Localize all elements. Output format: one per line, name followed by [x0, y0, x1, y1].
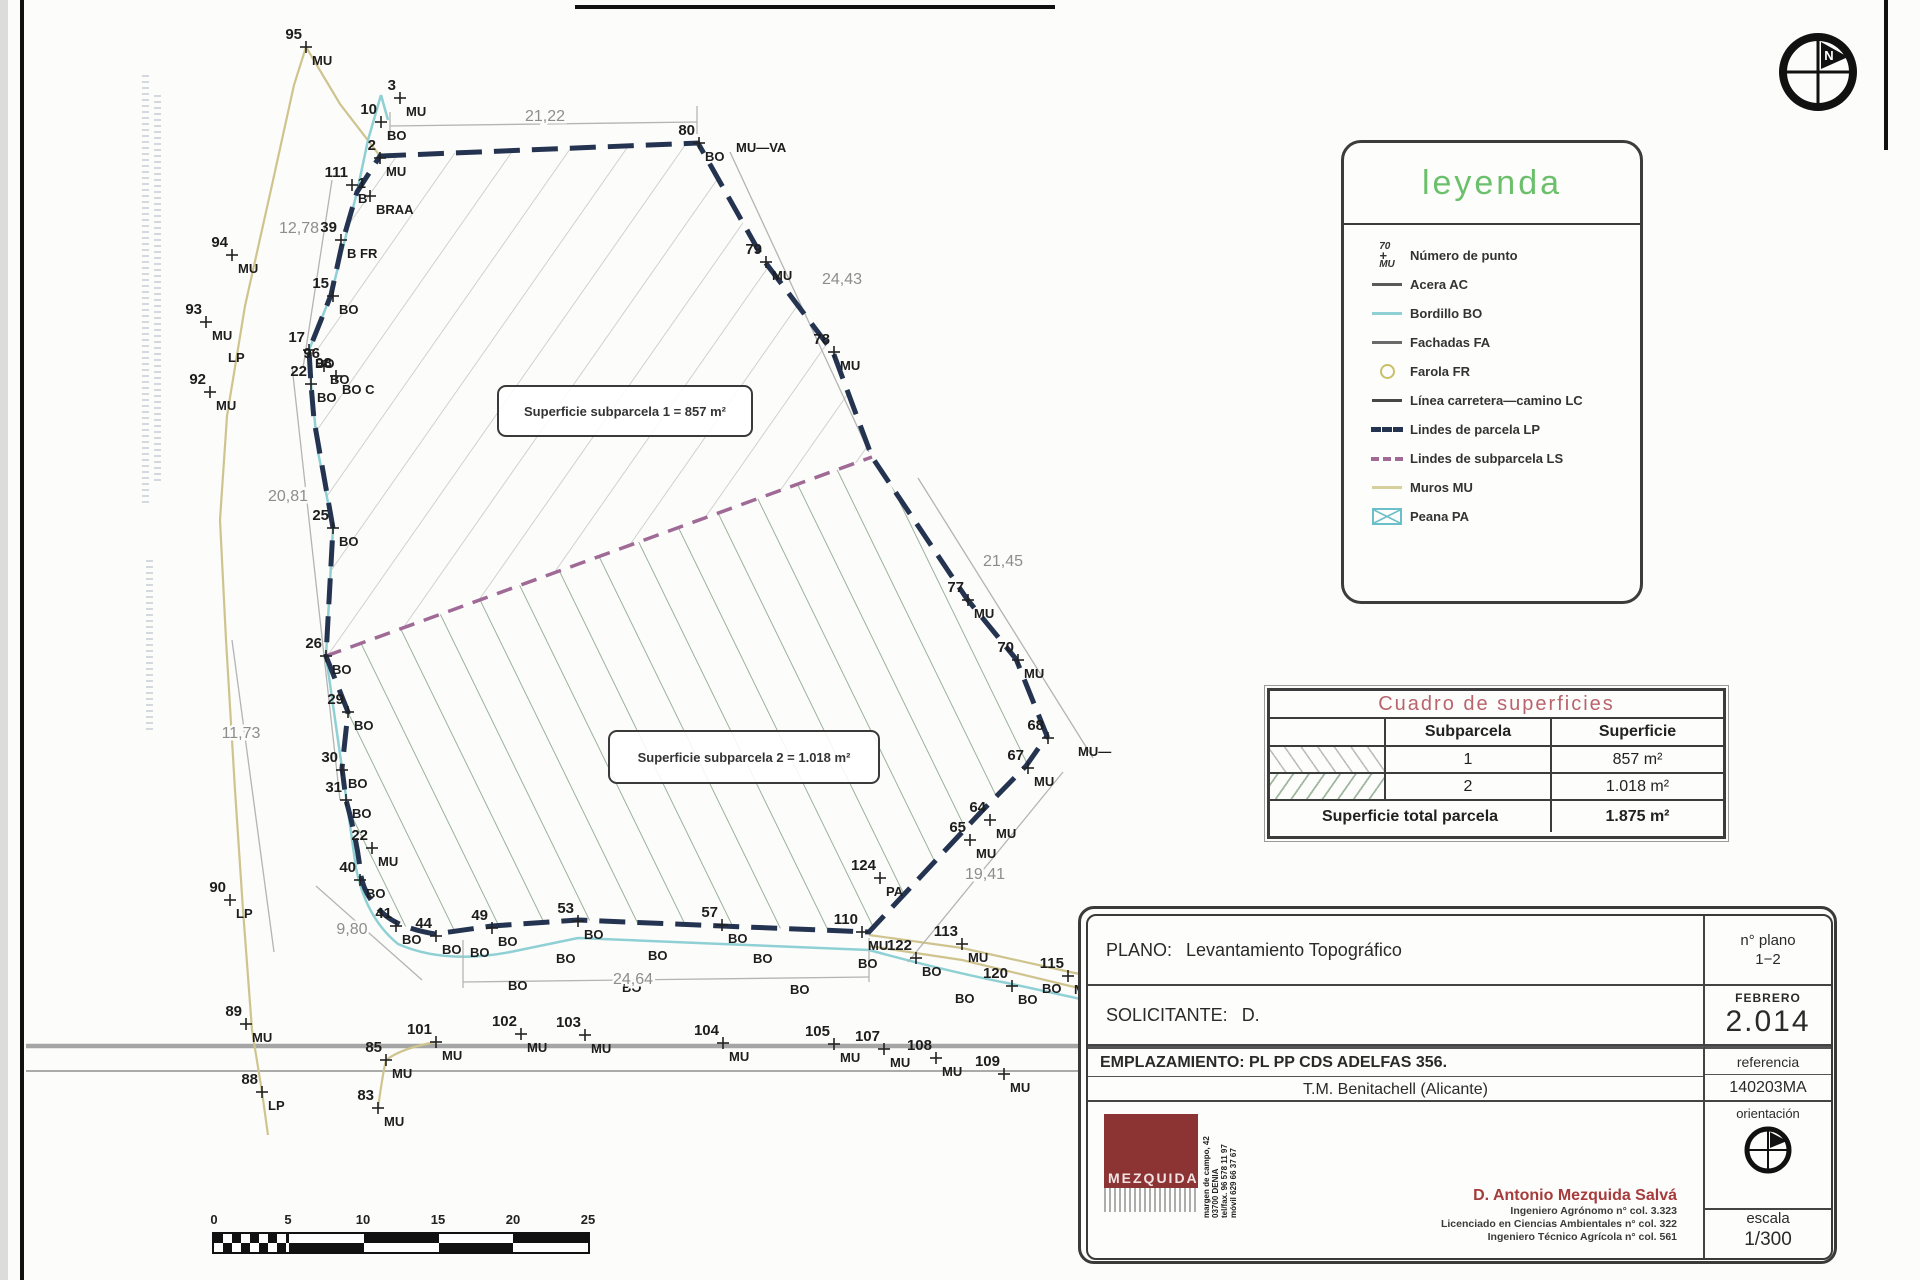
svg-text:98: 98	[315, 355, 332, 372]
legend-item-lindes-parcela: Lindes de parcela LP	[1364, 415, 1630, 444]
svg-text:89: 89	[225, 1003, 242, 1020]
mezquida-logo-caption	[1104, 1188, 1198, 1212]
surfaces-row2-subparcela: 2	[1386, 774, 1552, 801]
svg-text:1: 1	[358, 175, 366, 192]
svg-text:BO: BO	[332, 662, 352, 677]
legend-label: Muros MU	[1410, 480, 1473, 495]
dimension-label: 24,43	[822, 271, 862, 288]
svg-text:101: 101	[407, 1021, 432, 1038]
svg-text:26: 26	[305, 635, 322, 652]
escala-cell: escala 1/300	[1705, 1210, 1831, 1251]
n-plano-cell: n° plano 1−2	[1705, 916, 1831, 986]
svg-text:10: 10	[360, 101, 377, 118]
svg-text:85: 85	[365, 1039, 382, 1056]
subparcel-2-label: Superficie subparcela 2 = 1.018 m²	[608, 730, 880, 784]
svg-text:70: 70	[997, 639, 1014, 656]
svg-text:MU: MU	[868, 938, 888, 953]
signature-cell: MEZQUIDA margen de campo, 42 03700 DENIA…	[1088, 1102, 1705, 1258]
svg-text:111: 111	[325, 164, 348, 181]
svg-text:MU: MU	[527, 1040, 547, 1055]
mezquida-logo: MEZQUIDA margen de campo, 42 03700 DENIA…	[1088, 1102, 1238, 1258]
scale-label: 0	[210, 1212, 217, 1227]
solicitante-value: D.	[1242, 1005, 1260, 1026]
north-arrow-icon: N	[1772, 26, 1864, 118]
orientacion-north-icon	[1739, 1121, 1797, 1179]
engineer-line: Ingeniero Técnico Agrícola n° col. 561	[1441, 1231, 1677, 1244]
svg-text:103: 103	[556, 1014, 581, 1031]
orientacion-escala-cell: orientación escala 1/300	[1705, 1102, 1831, 1258]
fecha-mes: FEBRERO	[1735, 991, 1801, 1005]
svg-text:102: 102	[492, 1013, 517, 1030]
svg-text:120: 120	[983, 965, 1008, 982]
svg-text:78: 78	[813, 331, 830, 348]
svg-text:122: 122	[887, 937, 912, 954]
engineer-credentials: D. Antonio Mezquida Salvá Ingeniero Agró…	[1441, 1187, 1677, 1244]
plan-annotation: BO	[470, 945, 490, 960]
svg-text:BO: BO	[728, 931, 748, 946]
svg-text:MU: MU	[1034, 774, 1054, 789]
svg-text:15: 15	[312, 275, 329, 292]
lindes-parcela-line-icon	[1364, 427, 1410, 432]
acera-line-icon	[1364, 283, 1410, 286]
survey-point: 101MU	[407, 1021, 462, 1063]
svg-text:108: 108	[907, 1037, 932, 1054]
svg-text:LP: LP	[268, 1098, 285, 1113]
legend-title: leyenda	[1344, 143, 1640, 225]
svg-text:22: 22	[351, 827, 368, 844]
surfaces-row1-swatch	[1270, 747, 1386, 774]
svg-text:MU: MU	[840, 1050, 860, 1065]
dimension-label: 21,45	[983, 553, 1023, 570]
plan-annotation: BO	[955, 991, 975, 1006]
mezquida-logo-address: margen de campo, 42 03700 DENIA tel/fax.…	[1202, 1114, 1238, 1218]
svg-text:95: 95	[285, 26, 302, 43]
plan-annotation: BO	[556, 951, 576, 966]
plano-label: PLANO:	[1106, 940, 1172, 961]
svg-text:44: 44	[415, 915, 432, 932]
svg-text:MU: MU	[840, 358, 860, 373]
svg-text:40: 40	[339, 859, 356, 876]
bordillo-line-icon	[1364, 312, 1410, 315]
scale-label: 10	[356, 1212, 370, 1227]
svg-text:67: 67	[1007, 747, 1024, 764]
survey-point: 113MU	[934, 923, 988, 965]
survey-point: 94MU	[211, 234, 258, 276]
surfaces-table-title: Cuadro de superficies	[1270, 691, 1723, 719]
legend-item-numero-punto: 70+MU Número de punto	[1364, 241, 1630, 270]
mezquida-logo-text: MEZQUIDA	[1108, 1170, 1199, 1186]
surfaces-total-value: 1.875 m²	[1552, 801, 1723, 832]
svg-text:93: 93	[185, 301, 202, 318]
svg-text:2: 2	[368, 137, 376, 154]
fecha-cell: FEBRERO 2.014	[1705, 986, 1831, 1046]
surfaces-row2-swatch	[1270, 774, 1386, 801]
survey-point: 107MU	[855, 1028, 910, 1070]
svg-text:88: 88	[241, 1071, 258, 1088]
legend-label: Bordillo BO	[1410, 306, 1482, 321]
svg-text:BO: BO	[354, 718, 374, 733]
svg-text:MU: MU	[1010, 1080, 1030, 1095]
referencia-cell: referencia 140203MA	[1705, 1046, 1831, 1102]
plan-annotation: BO	[648, 948, 668, 963]
surfaces-header-subparcela: Subparcela	[1386, 719, 1552, 747]
scale-bar: 0 5 10 15 20 25	[212, 1212, 590, 1254]
subparcel-1-label-text: Superficie subparcela 1 = 857 m²	[524, 404, 726, 419]
svg-text:N: N	[1824, 48, 1833, 63]
surfaces-row2-superficie: 1.018 m²	[1552, 774, 1723, 801]
plan-annotation: MU—	[1078, 744, 1111, 759]
svg-text:BO: BO	[339, 534, 359, 549]
svg-text:MU: MU	[976, 846, 996, 861]
survey-point: 109MU	[975, 1053, 1030, 1095]
surfaces-row1-subparcela: 1	[1386, 747, 1552, 774]
svg-text:29: 29	[327, 691, 344, 708]
legend-label: Número de punto	[1410, 248, 1518, 263]
subparcel-2-label-text: Superficie subparcela 2 = 1.018 m²	[638, 750, 851, 765]
svg-text:41: 41	[375, 905, 392, 922]
svg-text:BO: BO	[402, 932, 422, 947]
plan-annotation: BO	[790, 982, 810, 997]
svg-text:BO: BO	[1018, 992, 1038, 1007]
svg-text:115: 115	[1040, 955, 1064, 972]
escala-label: escala	[1746, 1210, 1789, 1227]
svg-text:MU: MU	[392, 1066, 412, 1081]
fachadas-line-icon	[1364, 341, 1410, 344]
survey-point: 95MU	[285, 26, 332, 68]
legend-item-acera: Acera AC	[1364, 270, 1630, 299]
legend-label: Peana PA	[1410, 509, 1469, 524]
svg-text:MU: MU	[442, 1048, 462, 1063]
dimension-label: 19,41	[965, 866, 1005, 883]
svg-text:MU: MU	[996, 826, 1016, 841]
referencia-value: 140203MA	[1705, 1075, 1831, 1100]
legend-box: leyenda 70+MU Número de punto Acera AC B…	[1341, 140, 1643, 604]
peana-icon	[1364, 508, 1410, 525]
plan-annotation: BO	[753, 951, 773, 966]
svg-text:BO C: BO C	[342, 382, 375, 397]
legend-point-code: MU	[1379, 260, 1395, 269]
legend-label: Acera AC	[1410, 277, 1468, 292]
svg-text:64: 64	[969, 799, 986, 816]
svg-text:110: 110	[834, 911, 858, 928]
svg-text:57: 57	[701, 904, 718, 921]
emplazamiento-line2: T.M. Benitachell (Alicante)	[1088, 1077, 1703, 1103]
scale-bar-labels: 0 5 10 15 20 25	[212, 1212, 590, 1232]
legend-item-linea-carretera: Línea carretera—camino LC	[1364, 386, 1630, 415]
dimension-label: 11,73	[222, 725, 261, 742]
orientacion-cell: orientación	[1705, 1102, 1831, 1210]
svg-text:B: B	[358, 191, 367, 206]
svg-text:94: 94	[211, 234, 228, 251]
svg-text:MU: MU	[238, 261, 258, 276]
solicitante-label: SOLICITANTE:	[1106, 1005, 1228, 1026]
scale-label: 5	[284, 1212, 291, 1227]
survey-point: 93MU	[185, 301, 232, 343]
plano-row: PLANO: Levantamiento Topográfico	[1088, 916, 1705, 986]
svg-text:MU: MU	[212, 328, 232, 343]
legend-item-lindes-subparcela: Lindes de subparcela LS	[1364, 444, 1630, 473]
svg-text:80: 80	[678, 122, 695, 139]
svg-text:MU: MU	[772, 268, 792, 283]
svg-text:MU: MU	[406, 104, 426, 119]
svg-text:MU: MU	[974, 606, 994, 621]
svg-text:65: 65	[949, 819, 966, 836]
surfaces-table: Cuadro de superficies Subparcela Superfi…	[1267, 688, 1726, 839]
legend-item-peana: Peana PA	[1364, 502, 1630, 531]
svg-text:BO: BO	[442, 942, 462, 957]
surfaces-total-label: Superficie total parcela	[1270, 801, 1552, 832]
svg-text:77: 77	[947, 579, 964, 596]
svg-text:BO: BO	[584, 927, 604, 942]
title-block: PLANO: Levantamiento Topográfico n° plan…	[1078, 906, 1837, 1264]
survey-point: 89MU	[225, 1003, 272, 1045]
legend-item-bordillo: Bordillo BO	[1364, 299, 1630, 328]
legend-item-fachadas: Fachadas FA	[1364, 328, 1630, 357]
orientacion-label: orientación	[1736, 1106, 1800, 1121]
svg-text:BO: BO	[339, 302, 359, 317]
emplazamiento-line1: EMPLAZAMIENTO: PL PP CDS ADELFAS 356.	[1088, 1049, 1703, 1077]
svg-text:LP: LP	[236, 906, 253, 921]
dimension-label: 20,81	[268, 488, 308, 505]
svg-text:MU: MU	[1024, 666, 1044, 681]
survey-point: 104MU	[694, 1022, 749, 1064]
scanned-plan-page: 95MU3MU10BO2MU111B1BRAA139B FR15BO17BO22…	[0, 0, 1920, 1280]
surfaces-row1-superficie: 857 m²	[1552, 747, 1723, 774]
survey-point: 3MU	[388, 77, 427, 119]
svg-text:MU: MU	[942, 1064, 962, 1079]
svg-text:105: 105	[805, 1023, 830, 1040]
subparcel-1-label: Superficie subparcela 1 = 857 m²	[497, 385, 753, 437]
emplazamiento-cell: EMPLAZAMIENTO: PL PP CDS ADELFAS 356. T.…	[1088, 1046, 1705, 1102]
engineer-line: Ingeniero Agrónomo n° col. 3.323	[1441, 1205, 1677, 1218]
svg-text:B FR: B FR	[347, 246, 378, 261]
svg-text:MU: MU	[968, 950, 988, 965]
dimension-label: 21,22	[525, 108, 565, 125]
svg-text:31: 31	[325, 779, 342, 796]
survey-point: 108MU	[907, 1037, 962, 1079]
svg-text:BO: BO	[922, 964, 942, 979]
svg-text:109: 109	[975, 1053, 1000, 1070]
legend-item-farola: Farola FR	[1364, 357, 1630, 386]
surfaces-header-superficie: Superficie	[1552, 719, 1723, 747]
escala-value: 1/300	[1744, 1229, 1792, 1251]
svg-text:25: 25	[312, 507, 329, 524]
point-number-icon: 70+MU	[1364, 242, 1410, 269]
dimension-label: 12,78	[279, 220, 319, 237]
mezquida-logo-square: MEZQUIDA	[1104, 1114, 1198, 1188]
svg-text:PA: PA	[886, 884, 904, 899]
svg-text:124: 124	[851, 857, 877, 874]
farola-icon	[1364, 364, 1410, 379]
svg-text:79: 79	[745, 241, 762, 258]
svg-text:MU: MU	[729, 1049, 749, 1064]
svg-text:BO: BO	[705, 149, 725, 164]
svg-text:104: 104	[694, 1022, 720, 1039]
svg-text:90: 90	[209, 879, 226, 896]
legend-label: Farola FR	[1410, 364, 1470, 379]
solicitante-row: SOLICITANTE: D.	[1088, 986, 1705, 1046]
plan-annotation: BO	[508, 978, 528, 993]
svg-text:49: 49	[471, 907, 488, 924]
plan-annotation: MU—VA	[736, 140, 787, 155]
plan-annotation: LP	[228, 350, 245, 365]
plan-annotation: BO	[1042, 981, 1062, 996]
scale-label: 15	[431, 1212, 445, 1227]
muros-line-icon	[1364, 486, 1410, 489]
svg-text:MU: MU	[378, 854, 398, 869]
n-plano-label: n° plano	[1740, 931, 1795, 950]
legend-list: 70+MU Número de punto Acera AC Bordillo …	[1344, 225, 1640, 531]
n-plano-value: 1−2	[1755, 950, 1780, 969]
plano-value: Levantamiento Topográfico	[1186, 940, 1402, 961]
svg-text:3: 3	[388, 77, 396, 94]
fecha-anio: 2.014	[1725, 1005, 1810, 1039]
referencia-label: referencia	[1705, 1049, 1831, 1075]
svg-text:30: 30	[321, 749, 338, 766]
svg-text:MU: MU	[216, 398, 236, 413]
scale-label: 25	[581, 1212, 595, 1227]
surfaces-table-grid: Subparcela Superficie 1 857 m² 2 1.018 m…	[1270, 719, 1723, 832]
plan-annotation: BO	[858, 956, 878, 971]
svg-text:BO: BO	[387, 128, 407, 143]
svg-text:MU: MU	[252, 1030, 272, 1045]
svg-text:92: 92	[189, 371, 206, 388]
svg-text:BO: BO	[498, 934, 518, 949]
svg-text:MU: MU	[384, 1114, 404, 1129]
legend-label: Lindes de parcela LP	[1410, 422, 1540, 437]
surfaces-header-swatch	[1270, 719, 1386, 747]
survey-point: 103MU	[556, 1014, 611, 1056]
scale-bar-graphic	[212, 1232, 590, 1254]
carretera-line-icon	[1364, 399, 1410, 402]
svg-text:113: 113	[934, 923, 958, 940]
legend-label: Línea carretera—camino LC	[1410, 393, 1583, 408]
legend-label: Lindes de subparcela LS	[1410, 451, 1563, 466]
svg-text:53: 53	[557, 900, 574, 917]
dimension-label: 9,80	[336, 921, 367, 938]
engineer-name: D. Antonio Mezquida Salvá	[1441, 1187, 1677, 1205]
svg-text:68: 68	[1027, 717, 1044, 734]
svg-text:BRAA: BRAA	[376, 202, 414, 217]
engineer-line: Licenciado en Ciencias Ambientales n° co…	[1441, 1218, 1677, 1231]
svg-text:22: 22	[290, 363, 307, 380]
svg-text:17: 17	[288, 329, 305, 346]
svg-text:MU: MU	[890, 1055, 910, 1070]
svg-text:MU: MU	[386, 164, 406, 179]
svg-text:BO: BO	[366, 886, 386, 901]
legend-item-muros: Muros MU	[1364, 473, 1630, 502]
dimension-label: 24,64	[613, 971, 653, 988]
svg-text:MU: MU	[312, 53, 332, 68]
lindes-subparcela-line-icon	[1364, 457, 1410, 461]
svg-text:BO: BO	[348, 776, 368, 791]
survey-point: 92MU	[189, 371, 236, 413]
survey-point: 102MU	[492, 1013, 547, 1055]
svg-text:107: 107	[855, 1028, 880, 1045]
svg-text:MU: MU	[591, 1041, 611, 1056]
legend-label: Fachadas FA	[1410, 335, 1490, 350]
svg-text:83: 83	[357, 1087, 374, 1104]
svg-text:BO: BO	[352, 806, 372, 821]
svg-text:BO: BO	[317, 390, 337, 405]
survey-point: 90LP	[209, 879, 253, 921]
scale-label: 20	[506, 1212, 520, 1227]
